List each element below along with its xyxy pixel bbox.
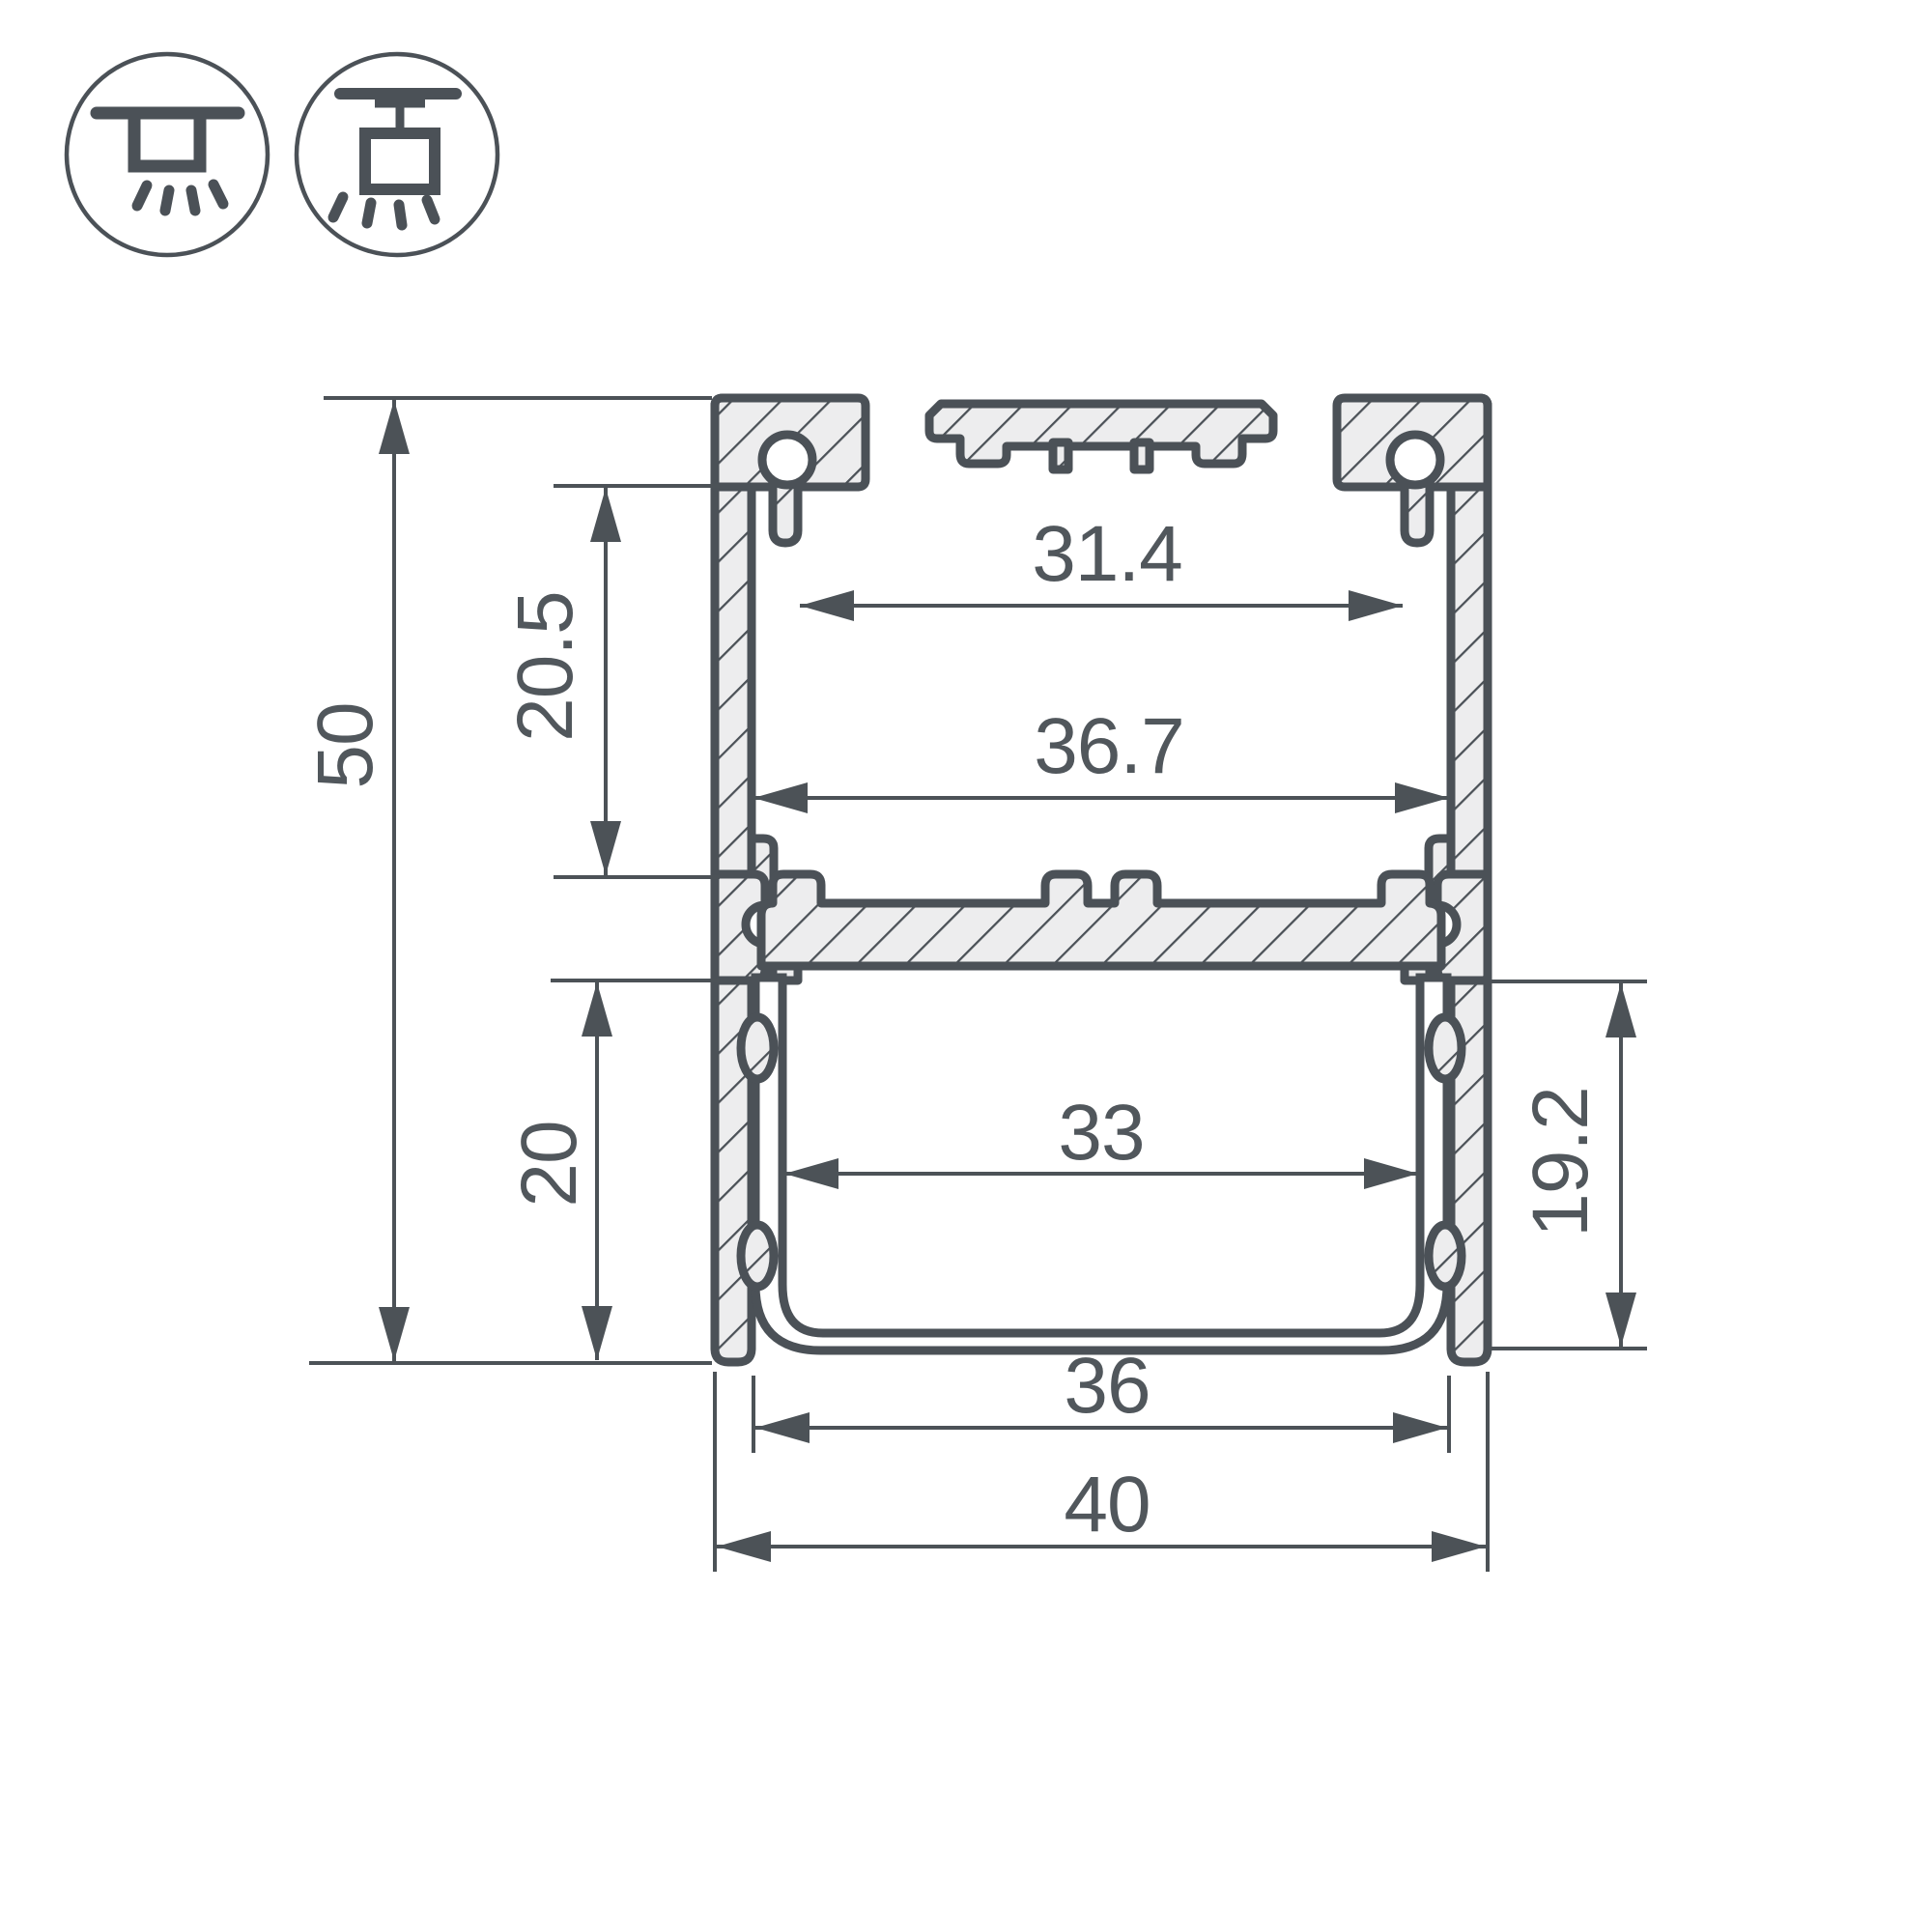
right-clip-bump [1429, 1017, 1462, 1079]
pendant-ceiling-mount-icon [297, 54, 497, 255]
light-rays [137, 185, 223, 211]
dim-label-33: 33 [1058, 1089, 1144, 1177]
dim-side-inner-height: 19.2 [1491, 981, 1647, 1349]
left-clip-bump [741, 1017, 774, 1079]
surface-ceiling-mount-icon [67, 54, 268, 255]
dim-label-19-2: 19.2 [1517, 1087, 1605, 1237]
dim-bottom-inner-width: 33 [782, 1089, 1420, 1200]
dim-label-20-5: 20.5 [501, 591, 589, 742]
left-clip-bump [741, 1225, 774, 1287]
dim-label-20: 20 [505, 1121, 593, 1207]
top-plate [929, 404, 1273, 464]
dim-label-40: 40 [1064, 1461, 1150, 1548]
lamp-box [365, 133, 435, 189]
dim-top-opening-width: 31.4 [800, 510, 1403, 621]
dim-label-36-7: 36.7 [1034, 702, 1184, 790]
lamp-box [134, 113, 200, 166]
dim-overall-height: 50 [301, 398, 712, 1363]
dim-label-36: 36 [1064, 1342, 1150, 1430]
dim-inner-width-top: 36.7 [753, 702, 1449, 813]
dim-bottom-opening-width: 36 [753, 1342, 1449, 1453]
top-plate-tooth [1053, 442, 1068, 469]
right-clip-bump [1429, 1225, 1462, 1287]
dim-label-31-4: 31.4 [1032, 510, 1182, 598]
icon-circle [67, 54, 268, 255]
dim-bottom-chamber-height: 20 [505, 980, 720, 1360]
mount-icons [67, 54, 497, 255]
light-rays [333, 197, 435, 225]
top-plate-tooth [1134, 442, 1150, 469]
mid-plate [761, 874, 1441, 966]
dim-label-50: 50 [301, 702, 389, 788]
dim-top-chamber-height: 20.5 [501, 486, 720, 877]
profile-drawing: 50 20.5 20 19.2 [0, 0, 1932, 1932]
